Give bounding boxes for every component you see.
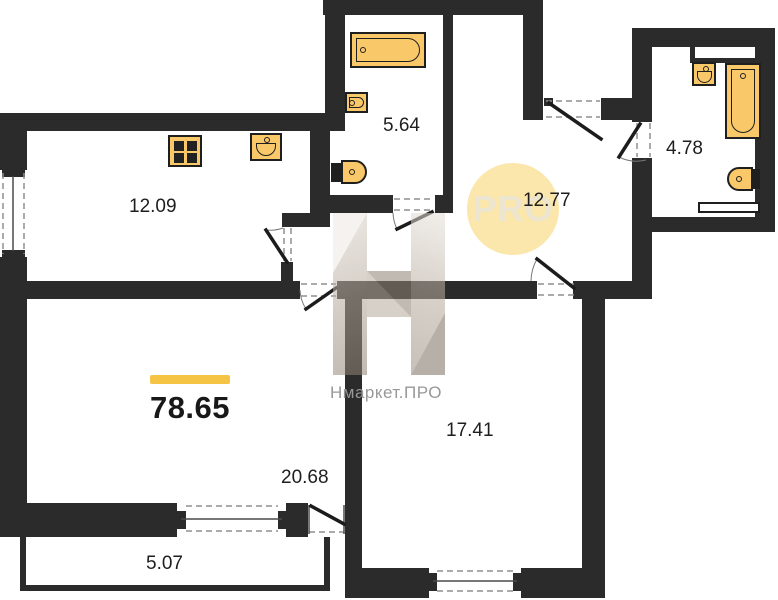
floor-plan: PRO Нмаркет.ПРО 78.65 12.09 5.64 4.78 12… bbox=[0, 0, 778, 600]
kitchen-door-leaf bbox=[266, 230, 287, 262]
room-area-balcony: 5.07 bbox=[146, 553, 183, 575]
room-area-bedroom: 17.41 bbox=[446, 420, 494, 442]
door-leaves bbox=[266, 103, 640, 524]
total-area-value: 78.65 bbox=[140, 390, 240, 426]
total-area-label: 78.65 bbox=[140, 375, 240, 426]
accent-bar bbox=[150, 375, 230, 384]
living-door-leaf bbox=[306, 288, 336, 309]
door-swing-arcs bbox=[266, 157, 646, 309]
door-opening-dashes bbox=[3, 101, 650, 591]
balcony-door-leaf bbox=[311, 506, 344, 524]
room-area-bathroom-small: 5.64 bbox=[383, 115, 420, 137]
watermark-h-logo bbox=[333, 213, 445, 375]
room-area-bathroom-large: 4.78 bbox=[666, 138, 703, 160]
bath-large-door-leaf bbox=[619, 124, 640, 157]
entrance-door-leaf bbox=[549, 103, 601, 139]
watermark-brand-text: Нмаркет.ПРО bbox=[330, 383, 442, 403]
room-area-hall: 12.77 bbox=[523, 190, 571, 212]
room-area-living: 20.68 bbox=[281, 467, 329, 489]
room-area-kitchen: 12.09 bbox=[129, 196, 177, 218]
